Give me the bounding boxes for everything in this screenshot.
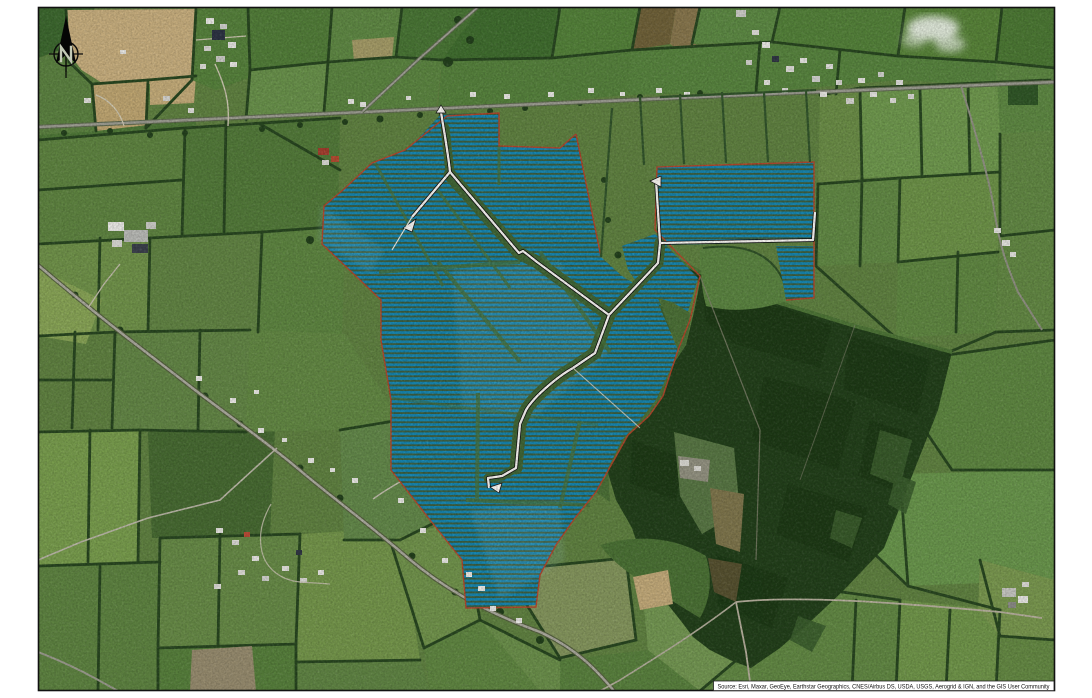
svg-text:Source: Esri, Maxar, GeoEye, E: Source: Esri, Maxar, GeoEye, Earthstar G…: [718, 684, 1050, 691]
